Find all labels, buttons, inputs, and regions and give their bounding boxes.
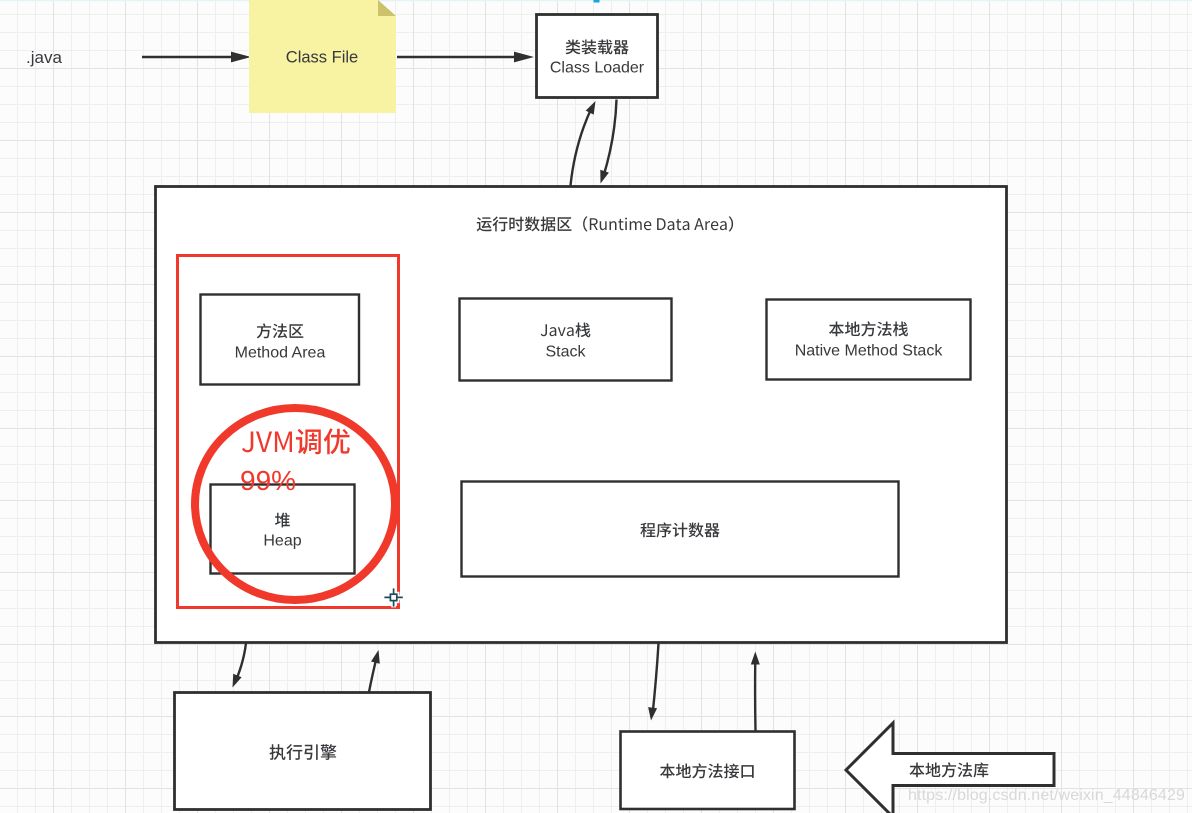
svg-text:Method Area: Method Area: [235, 345, 326, 362]
svg-text:Native Method Stack: Native Method Stack: [795, 343, 944, 360]
svg-text:Class File: Class File: [286, 49, 358, 67]
svg-text:.java: .java: [26, 48, 62, 67]
svg-text:99%: 99%: [240, 465, 296, 496]
svg-text:Stack: Stack: [545, 344, 586, 361]
svg-text:Class Loader: Class Loader: [550, 60, 645, 77]
svg-text:https://blog.csdn.net/weixin_4: https://blog.csdn.net/weixin_44846429: [908, 787, 1185, 804]
svg-text:Heap: Heap: [263, 533, 301, 550]
